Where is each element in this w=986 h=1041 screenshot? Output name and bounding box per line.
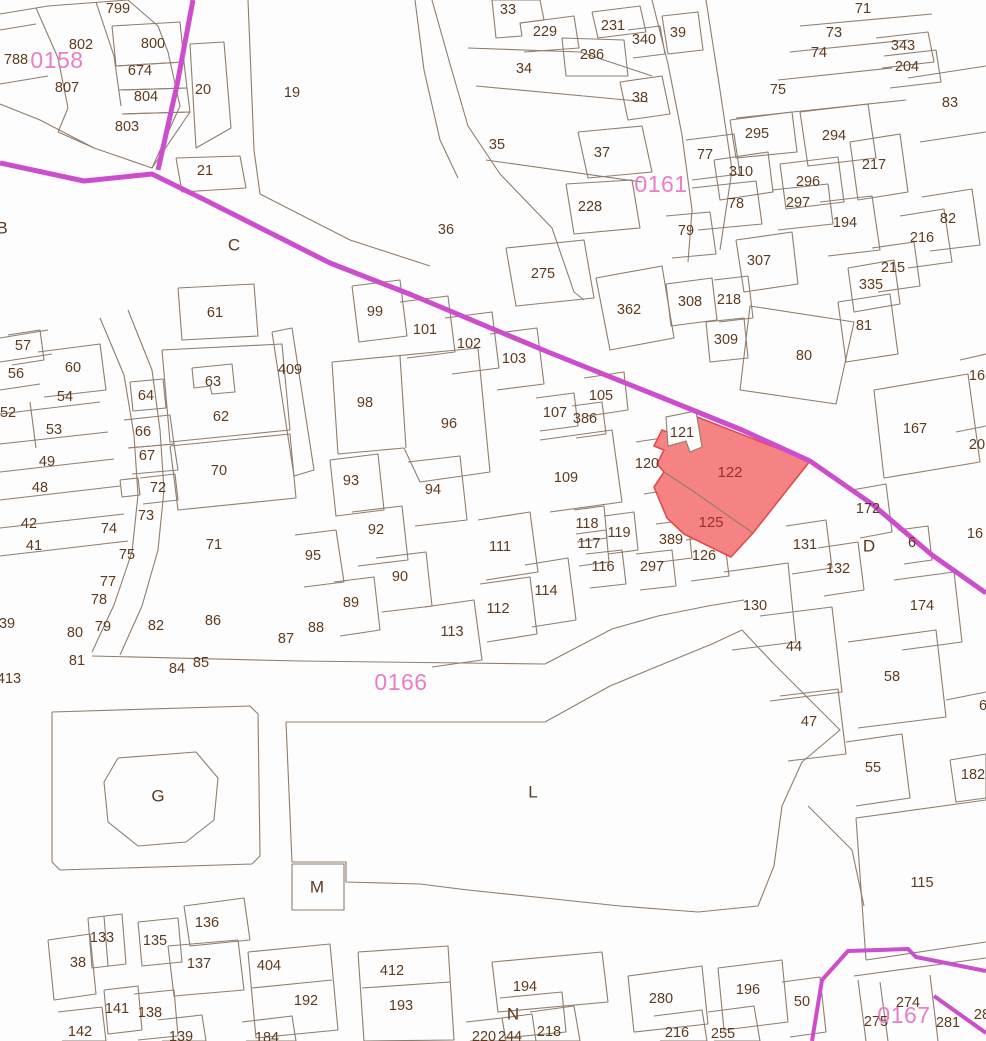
cadastral-map[interactable]: 7998008027886748078042019803213322923134… (0, 0, 986, 1041)
parcel-number-label: 138 (138, 1005, 162, 1021)
parcel-boundary (908, 66, 986, 78)
parcel-number-label: 39 (0, 616, 15, 632)
parcel-number-label: 78 (728, 196, 744, 212)
parcel-number-label: 82 (940, 211, 956, 227)
map-canvas[interactable]: 7998008027886748078042019803213322923134… (0, 0, 986, 1041)
section-letter-label: N (507, 1004, 519, 1023)
north-branch-road (158, 0, 193, 170)
parcel-number-label: 196 (736, 982, 760, 998)
parcel-number-label: 84 (169, 661, 185, 677)
parcel-number-label: 107 (543, 405, 567, 421)
parcel-number-label: 101 (413, 322, 437, 338)
section-letter-label: B (0, 218, 8, 237)
parcel-number-label: 96 (441, 416, 457, 432)
parcel-number-label: 105 (589, 388, 613, 404)
parcel-number-label: 6 (979, 698, 986, 714)
parcel-number-label: 62 (213, 409, 229, 425)
parcel-boundary (0, 541, 128, 556)
parcel-number-label: 77 (100, 574, 116, 590)
section-letter-label: G (151, 786, 164, 805)
parcel-number-label: 340 (632, 32, 656, 48)
parcel-number-label: 75 (770, 82, 786, 98)
parcel-number-label: 73 (138, 508, 154, 524)
parcel-number-label: 142 (68, 1024, 92, 1040)
parcel-number-label: 141 (105, 1001, 129, 1017)
parcel-number-label: 80 (67, 625, 83, 641)
parcel-number-label: 194 (513, 979, 537, 995)
parcel-number-label: 42 (21, 516, 37, 532)
parcel-number-label: 137 (187, 956, 211, 972)
parcel-number-label: 120 (635, 456, 659, 472)
parcel-boundary (128, 0, 180, 168)
parcel-number-label: 73 (826, 25, 842, 41)
parcel-number-label: 228 (578, 199, 602, 215)
parcel-number-label: 72 (150, 480, 166, 496)
parcel-number-label: 48 (32, 480, 48, 496)
parcel-number-label: 389 (659, 532, 683, 548)
parcel-number-label: 82 (148, 618, 164, 634)
parcel-number-label: 182 (961, 767, 985, 783)
parcel-number-label: 310 (729, 164, 753, 180)
parcel-number-label: 231 (601, 18, 625, 34)
parcel-number-label: 39 (670, 25, 686, 41)
parcel-number-label: 804 (134, 89, 158, 105)
parcel-number-label: 307 (747, 253, 771, 269)
parcel-boundary (0, 459, 114, 472)
parcel-number-label: 71 (206, 537, 222, 553)
parcel-number-label: 41 (26, 538, 42, 554)
parcel-number-label: 99 (367, 304, 383, 320)
parcel-number-label: 75 (119, 547, 135, 563)
district-number-label: 0166 (374, 669, 427, 695)
parcel-number-label: 218 (537, 1024, 561, 1040)
parcel-number-label: 93 (343, 473, 359, 489)
parcel-number-label: 78 (91, 592, 107, 608)
parcel-number-label: 112 (486, 601, 509, 617)
parcel-number-label: 81 (69, 653, 85, 669)
parcel-number-label: 295 (745, 126, 769, 142)
district-number-label: 0161 (634, 171, 687, 197)
parcel-number-label: 386 (573, 411, 597, 427)
parcel-boundary (0, 384, 40, 390)
parcel-number-label: 194 (833, 215, 857, 231)
parcel-number-label: 118 (575, 516, 598, 532)
parcel-number-label: 404 (257, 958, 281, 974)
parcel-number-label: 362 (617, 302, 641, 318)
parcel-number-label: 229 (533, 24, 557, 40)
parcel-number-label: 115 (910, 875, 933, 891)
parcel-number-label: 119 (607, 525, 630, 541)
parcel-number-label: 132 (826, 561, 850, 577)
parcel-boundary (272, 328, 314, 476)
parcel-number-label: 20 (969, 437, 985, 453)
parcel-number-label: 63 (205, 374, 221, 390)
parcel-number-label: 83 (942, 95, 958, 111)
parcel-number-label: 335 (859, 277, 883, 293)
parcel-number-label: 255 (711, 1026, 735, 1041)
parcel-number-label: 61 (207, 305, 223, 321)
parcel-number-label: 294 (822, 128, 846, 144)
parcel-boundary (0, 24, 36, 30)
parcel-number-label: 343 (891, 38, 915, 54)
parcel-boundary (856, 818, 866, 960)
parcel-number-label: 102 (457, 336, 481, 352)
parcel-number-label: 113 (440, 624, 463, 640)
highlighted-parcel-label: 125 (698, 514, 723, 531)
parcel-number-label: 126 (692, 548, 716, 564)
parcel-number-label: 412 (380, 963, 404, 979)
parcel-number-label: 95 (305, 548, 321, 564)
parcel-number-label: 64 (138, 388, 154, 404)
highlighted-parcel-label: 122 (717, 464, 742, 481)
parcel-number-label: 220 (472, 1029, 496, 1041)
parcel-number-label: 281 (936, 1015, 960, 1031)
parcel-number-label: 53 (46, 422, 62, 438)
parcel-number-label: 85 (193, 655, 209, 671)
parcel-boundary (170, 434, 296, 510)
parcel-number-label: 800 (141, 36, 165, 52)
parcel-number-label: 286 (580, 47, 604, 63)
district-number-label: 0167 (877, 1002, 930, 1028)
parcel-number-label: 135 (143, 933, 167, 949)
parcel-number-label: 788 (4, 52, 28, 68)
parcel-boundary (778, 68, 892, 80)
parcel-number-label: 87 (278, 631, 294, 647)
parcel-number-label: 56 (8, 366, 24, 382)
section-letter-label: L (528, 782, 537, 801)
parcel-number-label: 20 (195, 82, 211, 98)
section-letter-label: C (228, 235, 240, 254)
parcel-number-label: 184 (255, 1030, 279, 1041)
parcel-boundary (808, 806, 864, 906)
parcel-boundary (260, 194, 430, 266)
parcel-number-label: 52 (0, 405, 16, 421)
parcel-number-label: 60 (65, 360, 81, 376)
parcel-number-label: 109 (554, 470, 578, 486)
parcel-number-label: 215 (881, 260, 905, 276)
parcel-number-label: 297 (640, 559, 664, 575)
parcel-number-label: 16 (967, 526, 983, 542)
section-letter-label: D (863, 536, 875, 555)
parcel-number-label: 79 (678, 223, 694, 239)
parcel-number-label: 74 (101, 521, 117, 537)
parcel-boundary (486, 160, 642, 182)
parcel-number-label: 80 (796, 348, 812, 364)
parcel-number-label: 90 (392, 569, 408, 585)
parcel-number-label: 21 (197, 163, 213, 179)
parcel-number-label: 131 (793, 537, 817, 553)
parcel-number-label: 81 (856, 318, 872, 334)
parcel-boundary (400, 356, 406, 448)
parcel-number-label: 88 (308, 620, 324, 636)
parcel-number-label: 70 (211, 463, 227, 479)
parcel-number-label: 193 (389, 998, 413, 1014)
district-number-label: 0158 (30, 47, 83, 73)
parcel-number-label: 244 (498, 1029, 522, 1041)
parcel-number-label: 309 (714, 332, 738, 348)
parcel-number-label: 16 (969, 368, 985, 384)
parcel-number-label: 799 (106, 1, 130, 17)
parcel-boundary (248, 0, 260, 194)
parcel-number-label: 130 (743, 598, 767, 614)
parcel-number-label: 37 (594, 145, 610, 161)
parcel-number-label: 136 (195, 915, 219, 931)
parcel-number-label: 66 (135, 424, 151, 440)
parcel-number-label: 117 (577, 536, 600, 552)
parcel-number-label: 79 (95, 619, 111, 635)
parcel-number-label: 103 (502, 351, 526, 367)
parcel-boundary (252, 980, 332, 988)
parcel-boundary (956, 426, 986, 432)
parcel-number-label: 77 (697, 147, 713, 163)
parcel-number-label: 36 (438, 222, 454, 238)
parcel-number-label: 50 (794, 994, 810, 1010)
parcel-number-label: 217 (862, 157, 886, 173)
parcel-boundary (358, 946, 454, 1041)
parcel-number-label: 216 (910, 230, 934, 246)
parcel-number-label: 44 (786, 639, 802, 655)
parcel-number-label: 35 (489, 137, 505, 153)
parcel-number-label: 807 (55, 80, 79, 96)
parcel-boundary (0, 486, 120, 500)
parcel-number-label: 6 (908, 535, 916, 551)
parcel-boundary (492, 952, 608, 1012)
parcel-number-label: 275 (531, 266, 555, 282)
parcel-boundary (858, 980, 866, 1041)
parcel-number-label: 121 (670, 425, 694, 441)
parcel-number-label: 280 (649, 991, 673, 1007)
parcel-number-label: 47 (801, 714, 817, 730)
parcel-number-label: 413 (0, 671, 21, 687)
parcel-number-label: 114 (534, 583, 557, 599)
parcel-number-label: 71 (855, 1, 871, 17)
parcel-number-label: 409 (278, 362, 302, 378)
parcel-boundary (920, 132, 986, 142)
parcel-boundary (362, 982, 450, 988)
parcel-boundary (540, 430, 622, 512)
parcel-number-label: 28 (974, 1007, 986, 1023)
parcel-number-label: 192 (294, 993, 318, 1009)
parcel-number-label: 116 (591, 559, 614, 575)
parcel-number-label: 674 (128, 63, 152, 79)
parcel-number-label: 34 (516, 61, 532, 77)
parcel-number-label: 49 (39, 454, 55, 470)
parcel-number-label: 167 (903, 421, 927, 437)
parcel-number-label: 57 (15, 338, 31, 354)
parcel-number-label: 74 (811, 45, 827, 61)
parcel-number-label: 89 (343, 595, 359, 611)
parcel-boundary (930, 975, 938, 1041)
parcel-number-label: 38 (70, 955, 86, 971)
parcel-number-label: 139 (169, 1029, 193, 1041)
parcel-boundary (286, 630, 840, 912)
parcel-boundary (468, 48, 652, 76)
parcel-number-label: 296 (796, 174, 820, 190)
parcel-boundary (432, 0, 584, 300)
parcel-number-label: 98 (357, 395, 373, 411)
parcel-number-label: 86 (205, 613, 221, 629)
parcel-number-label: 204 (895, 59, 919, 75)
parcel-number-label: 174 (910, 598, 934, 614)
parcel-number-label: 297 (786, 195, 810, 211)
section-letter-label: M (310, 877, 324, 896)
parcel-number-label: 803 (115, 119, 139, 135)
parcel-number-label: 38 (632, 90, 648, 106)
parcel-number-label: 19 (284, 85, 300, 101)
parcel-number-label: 308 (678, 294, 702, 310)
parcel-boundary (96, 2, 121, 106)
parcel-number-label: 218 (717, 292, 741, 308)
parcel-number-label: 33 (500, 2, 516, 18)
parcel-boundary (0, 76, 48, 84)
parcel-number-label: 55 (865, 760, 881, 776)
parcel-number-label: 94 (425, 482, 441, 498)
parcel-number-label: 58 (884, 669, 900, 685)
parcel-number-label: 67 (139, 448, 155, 464)
parcel-number-label: 54 (57, 389, 73, 405)
parcel-boundary (960, 354, 986, 360)
parcel-boundary (92, 656, 545, 664)
parcel-number-label: 216 (665, 1025, 689, 1041)
parcel-number-label: 92 (368, 522, 384, 538)
parcel-number-label: 133 (90, 930, 114, 946)
parcel-boundary (415, 0, 458, 178)
parcel-number-label: 111 (489, 539, 511, 555)
parcel-number-label: 172 (856, 501, 880, 517)
